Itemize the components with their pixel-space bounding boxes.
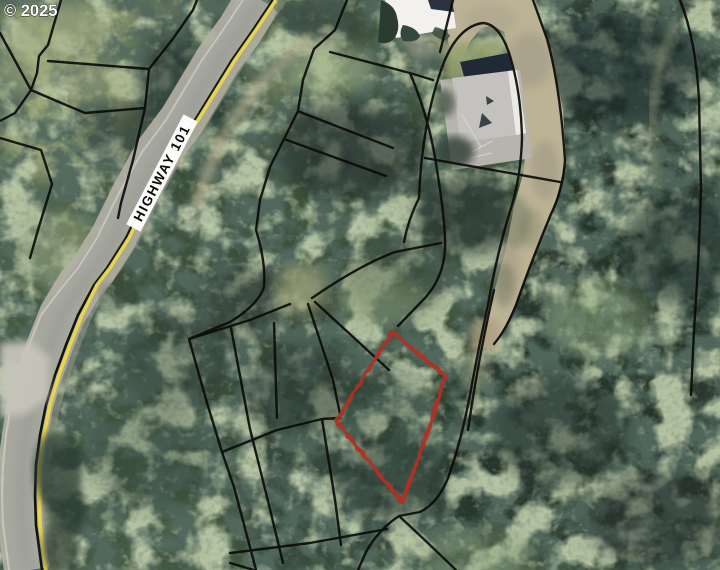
- svg-text:© 2025: © 2025: [4, 2, 57, 20]
